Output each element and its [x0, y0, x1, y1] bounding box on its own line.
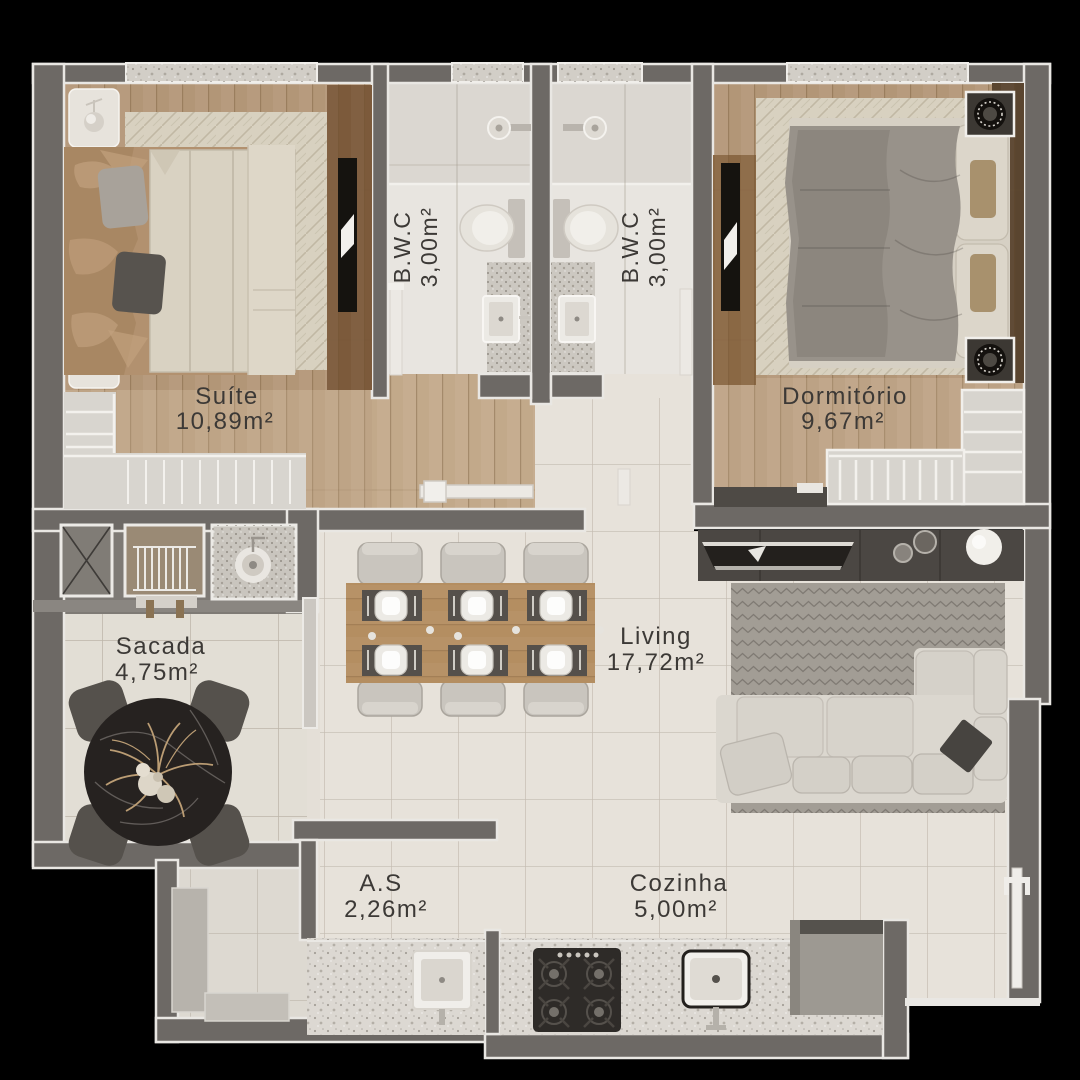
svg-text:Living: Living — [620, 623, 692, 650]
svg-text:Sacada: Sacada — [116, 633, 206, 660]
svg-text:A.S: A.S — [359, 870, 402, 897]
svg-text:Cozinha: Cozinha — [630, 870, 729, 897]
svg-text:10,89m²: 10,89m² — [176, 408, 275, 435]
svg-text:3,00m²: 3,00m² — [416, 207, 442, 288]
svg-text:9,67m²: 9,67m² — [801, 408, 885, 435]
svg-text:B.W.C: B.W.C — [617, 211, 643, 284]
svg-text:4,75m²: 4,75m² — [115, 659, 199, 686]
svg-text:Suíte: Suíte — [195, 383, 259, 410]
svg-text:3,00m²: 3,00m² — [644, 207, 670, 288]
svg-text:2,26m²: 2,26m² — [344, 896, 428, 923]
svg-text:5,00m²: 5,00m² — [634, 896, 718, 923]
svg-text:17,72m²: 17,72m² — [607, 649, 706, 676]
svg-text:Dormitório: Dormitório — [782, 383, 908, 410]
svg-text:B.W.C: B.W.C — [389, 211, 415, 284]
